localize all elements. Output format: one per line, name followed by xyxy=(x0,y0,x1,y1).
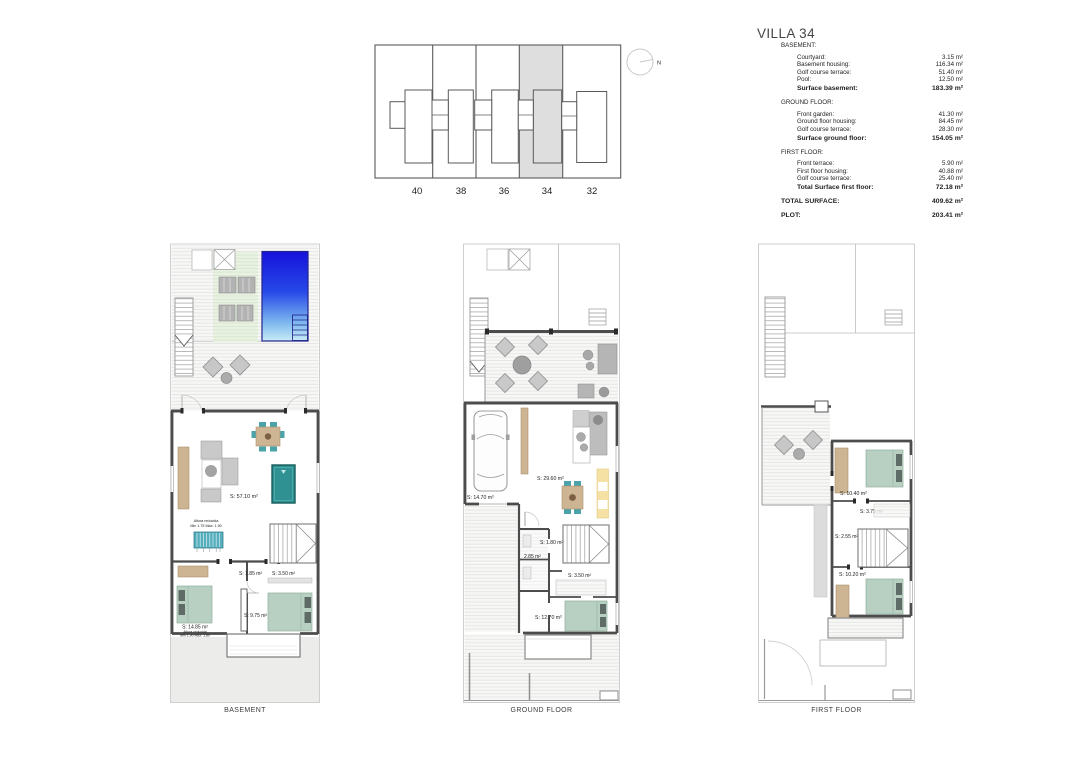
area-row: Front garden:41.30 m² xyxy=(781,111,963,119)
area-row: Ground floor housing:84.45 m² xyxy=(781,118,963,126)
floor-plan-first: S: 10.40 m² S: 3.75 m² S: 2.55 m² S: 10.… xyxy=(756,241,917,706)
section-total-row: Surface ground floor:154.05 m² xyxy=(781,135,963,143)
area-summary-table: BASEMENT: Courtyard:3.15 m² Basement hou… xyxy=(781,42,963,220)
site-plan: 40 38 36 34 32 N xyxy=(370,38,670,203)
dining-table xyxy=(562,481,583,514)
room-label-bed-bottom: S: 10.20 m² xyxy=(839,572,866,578)
area-row: Golf course terrace:28.30 m² xyxy=(781,126,963,134)
bed xyxy=(565,601,607,631)
pool-table xyxy=(272,465,295,503)
area-label: Surface basement: xyxy=(781,85,858,93)
room-label-garage: S: 14.70 m² xyxy=(467,495,494,501)
site-unit-label: 40 xyxy=(412,186,423,197)
room-label-bath: S: 3.50 m² xyxy=(272,571,295,577)
area-label: Courtyard: xyxy=(781,54,826,62)
page-title: VILLA 34 xyxy=(757,26,815,41)
area-value: 84.45 m² xyxy=(939,118,963,126)
area-label: Total Surface first floor: xyxy=(781,184,874,192)
sideboard xyxy=(178,447,189,509)
building-38 xyxy=(448,90,473,163)
roof-strip xyxy=(814,505,827,597)
wardrobe xyxy=(835,448,848,493)
north-arrow-icon: N xyxy=(627,49,661,75)
area-value: 12.50 m² xyxy=(939,76,963,84)
area-label: Front terrace: xyxy=(781,160,834,168)
area-label: Golf course terrace: xyxy=(781,69,851,77)
area-row: Basement housing:116.34 m² xyxy=(781,61,963,69)
area-label: Ground floor housing: xyxy=(781,118,857,126)
area-value: 51.40 m² xyxy=(939,69,963,77)
area-row: First floor housing:40.88 m² xyxy=(781,168,963,176)
area-value: 409.62 m² xyxy=(932,198,963,206)
closet xyxy=(241,589,247,631)
svg-text:N: N xyxy=(657,61,661,67)
building-40 xyxy=(405,90,432,163)
balcony-terrace xyxy=(828,618,903,638)
area-label: Front garden: xyxy=(781,111,834,119)
area-value: 183.39 m² xyxy=(932,85,963,93)
plot-row: PLOT:203.41 m² xyxy=(781,212,963,220)
room-label-bed-top: S: 10.40 m² xyxy=(840,491,867,497)
area-value: 40.88 m² xyxy=(939,168,963,176)
bed-bottom xyxy=(866,579,903,614)
area-label: Golf course terrace: xyxy=(781,126,851,134)
altura-note: Altura reducida xyxy=(194,519,220,523)
kitchen xyxy=(573,411,607,464)
area-value: 72.18 m² xyxy=(936,184,963,192)
area-row: Golf course terrace:25.40 m² xyxy=(781,175,963,183)
section-total-row: Surface basement:183.39 m² xyxy=(781,85,963,93)
wardrobe xyxy=(178,566,208,577)
total-surface-row: TOTAL SURFACE:409.62 m² xyxy=(781,198,963,206)
driveway xyxy=(465,506,518,632)
area-row: Courtyard:3.15 m² xyxy=(781,54,963,62)
site-unit-label: 32 xyxy=(587,186,598,197)
interior-stair xyxy=(858,529,908,567)
caption-basement: BASEMENT xyxy=(168,707,322,714)
skylight xyxy=(214,250,235,270)
mini-steps xyxy=(589,309,606,325)
altura-note: Min 1.75 Max: 1.90 xyxy=(190,524,221,528)
area-value: 203.41 m² xyxy=(932,212,963,220)
skylight xyxy=(509,249,530,270)
area-label: Surface ground floor: xyxy=(781,135,866,143)
courtyard xyxy=(227,634,300,657)
room-label-store: S: 1.85 m² xyxy=(239,571,262,577)
area-value: 3.15 m² xyxy=(942,54,963,62)
area-row: Golf course terrace:51.40 m² xyxy=(781,69,963,77)
section-header: GROUND FLOOR: xyxy=(781,99,963,107)
area-row: Front terrace:5.90 m² xyxy=(781,160,963,168)
summary-section-basement: BASEMENT: Courtyard:3.15 m² Basement hou… xyxy=(781,42,963,93)
summary-section-first: FIRST FLOOR: Front terrace:5.90 m² First… xyxy=(781,149,963,192)
area-value: 116.34 m² xyxy=(936,61,963,69)
site-unit-label: 36 xyxy=(499,186,510,197)
bed-top xyxy=(866,450,903,487)
porch xyxy=(525,635,591,659)
building-36 xyxy=(492,90,519,163)
room-label-wc: 2.85 m² xyxy=(524,554,541,560)
area-label: PLOT: xyxy=(781,212,801,220)
section-header: FIRST FLOOR: xyxy=(781,149,963,157)
bed-right xyxy=(268,593,312,631)
section-total-row: Total Surface first floor:72.18 m² xyxy=(781,184,963,192)
partition-wall xyxy=(521,408,528,474)
site-unit-label: 34 xyxy=(542,186,553,197)
mini-steps xyxy=(885,310,902,325)
room-label-bath: S: 3.50 m² xyxy=(568,573,591,579)
area-value: 41.30 m² xyxy=(939,111,963,119)
exterior-stair xyxy=(765,297,785,377)
caption-ground-floor: GROUND FLOOR xyxy=(461,707,622,714)
area-label: TOTAL SURFACE: xyxy=(781,198,840,206)
area-label: Pool: xyxy=(781,76,811,84)
pool xyxy=(262,252,308,342)
room-label-hall: S: 2.55 m² xyxy=(835,534,858,540)
area-row: Pool:12.50 m² xyxy=(781,76,963,84)
altura-note: Min 1.90 Max: 1.80 xyxy=(180,634,210,638)
area-label: Basement housing: xyxy=(781,61,850,69)
area-label: First floor housing: xyxy=(781,168,848,176)
building-34 xyxy=(533,90,561,163)
floor-plan-ground: S: 14.70 m² S: 29.60 m² S: 1.80 m² 2.85 … xyxy=(461,241,622,706)
caption-first-floor: FIRST FLOOR xyxy=(756,707,917,714)
area-value: 154.05 m² xyxy=(932,135,963,143)
room-label-main: S: 57.10 m² xyxy=(230,494,258,500)
bed-left xyxy=(177,586,212,623)
room-label-bed: S: 12.70 m² xyxy=(535,615,562,621)
area-value: 5.90 m² xyxy=(942,160,963,168)
area-value: 28.30 m² xyxy=(939,126,963,134)
site-unit-label: 38 xyxy=(456,186,467,197)
area-value: 25.40 m² xyxy=(939,175,963,183)
area-label: Golf course terrace: xyxy=(781,175,851,183)
floor-plan-basement: S: 57.10 m² Altura reducida Min 1.75 Max… xyxy=(168,241,322,706)
terrace-stair xyxy=(175,298,193,376)
room-label-living: S: 29.60 m² xyxy=(537,476,564,482)
room-label-bed-right: S: 9.75 m² xyxy=(244,613,267,619)
interior-stair xyxy=(270,524,316,563)
section-header: BASEMENT: xyxy=(781,42,963,50)
car xyxy=(472,411,509,491)
room-label-hall: S: 1.80 m² xyxy=(540,540,563,546)
cabinets xyxy=(597,469,609,518)
interior-stair xyxy=(563,525,609,563)
summary-section-ground: GROUND FLOOR: Front garden:41.30 m² Grou… xyxy=(781,99,963,142)
building-32 xyxy=(577,92,607,163)
